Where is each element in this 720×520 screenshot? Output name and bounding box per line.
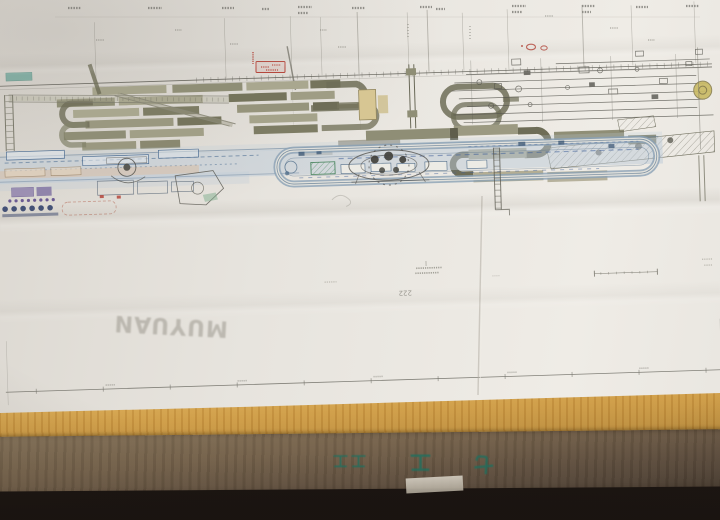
- box-marking: 工工: [330, 453, 366, 468]
- box-marking: 工: [410, 451, 431, 472]
- paper-scrap: [406, 476, 464, 494]
- conveyor-loop-cluster: [443, 85, 520, 129]
- box-marking: 七: [473, 453, 494, 474]
- dimension-line: [594, 269, 657, 277]
- fold-crease-line: [478, 196, 484, 395]
- top-dimension-band: [68, 6, 699, 13]
- pencil-note: 222: [398, 288, 412, 296]
- left-equipment-cluster: [0, 163, 200, 217]
- red-stamp: [253, 52, 285, 73]
- top-stray-marks: [55, 16, 700, 47]
- yellow-spiral-machine: [693, 81, 712, 100]
- layout-drawing: 222: [0, 1, 720, 405]
- red-check-ovals: [521, 44, 547, 50]
- serpentine-conveyor-block: [4, 55, 378, 153]
- pencil-scribbles: [322, 184, 713, 282]
- hatched-floor-area: [543, 47, 716, 206]
- photo-canvas: 工工 工 七: [0, 0, 720, 520]
